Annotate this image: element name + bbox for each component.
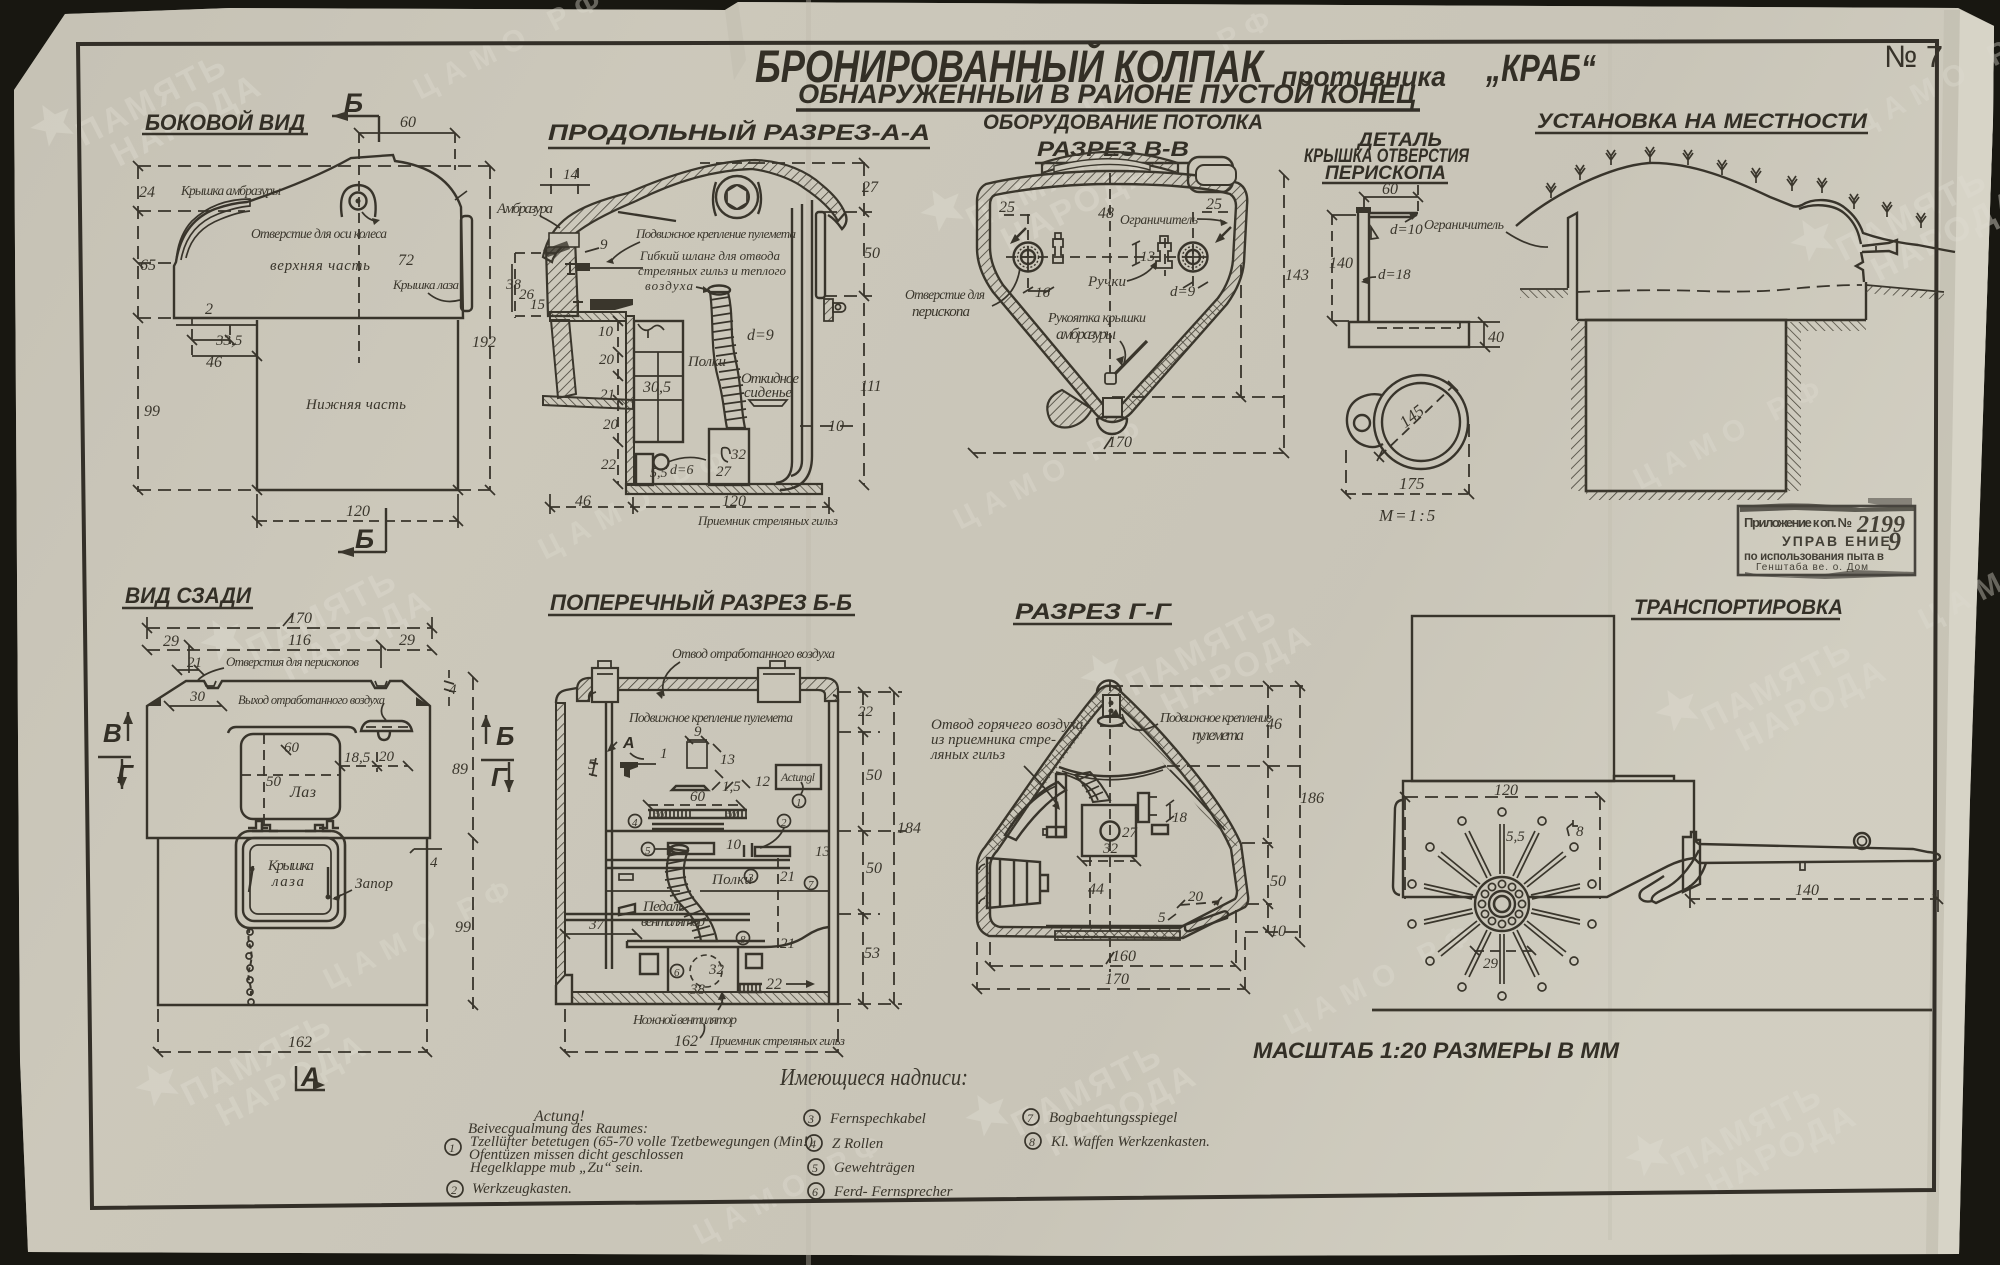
svg-text:Bogbaehtungsspiegel: Bogbaehtungsspiegel	[1049, 1110, 1177, 1126]
svg-text:УСТАНОВКА НА МЕСТНОСТИ: УСТАНОВКА НА МЕСТНОСТИ	[1537, 110, 1868, 133]
svg-text:ОБНАРУЖЕННЫЙ В РАЙОНЕ ПУСТОЙ К: ОБНАРУЖЕННЫЙ В РАЙОНЕ ПУСТОЙ КОНЕЦ	[798, 77, 1416, 109]
svg-text:Запор: Запор	[355, 876, 394, 892]
svg-text:Рукоятка крышки: Рукоятка крышки	[1047, 311, 1146, 326]
svg-text:Actungl: Actungl	[780, 770, 816, 784]
svg-text:13: 13	[815, 844, 830, 860]
svg-text:9: 9	[694, 724, 702, 740]
svg-text:18: 18	[1172, 810, 1188, 826]
svg-text:стреляных гильз и теплого: стреляных гильз и теплого	[638, 263, 787, 278]
svg-text:Отверстие для: Отверстие для	[905, 287, 985, 302]
svg-text:32: 32	[730, 447, 747, 463]
svg-text:21: 21	[600, 387, 615, 403]
svg-text:184: 184	[897, 820, 921, 837]
svg-text:вентилятор: вентилятор	[641, 914, 706, 930]
svg-text:10: 10	[598, 324, 614, 340]
svg-text:15: 15	[530, 297, 546, 313]
svg-text:2: 2	[781, 817, 787, 829]
svg-text:Полки: Полки	[687, 354, 726, 370]
svg-text:5,5: 5,5	[1506, 829, 1525, 845]
svg-text:пулемета: пулемета	[1192, 727, 1244, 744]
svg-text:Приемник стреляных гильз: Приемник стреляных гильз	[709, 1033, 845, 1048]
svg-text:10: 10	[726, 837, 742, 853]
svg-text:1: 1	[449, 1141, 455, 1155]
svg-text:30: 30	[189, 689, 206, 705]
svg-text:25: 25	[1206, 196, 1222, 213]
svg-text:21: 21	[780, 869, 795, 885]
svg-text:Z Rollen: Z Rollen	[832, 1136, 883, 1152]
svg-text:29: 29	[399, 632, 415, 649]
svg-text:2: 2	[205, 301, 213, 318]
svg-text:МАСШТАБ 1:20 РАЗМЕРЫ В ММ: МАСШТАБ 1:20 РАЗМЕРЫ В ММ	[1253, 1038, 1620, 1063]
svg-text:Отверстие для оси колеса: Отверстие для оси колеса	[251, 226, 387, 241]
svg-text:Подвижное крепление пулемета: Подвижное крепление пулемета	[635, 226, 797, 241]
svg-text:Подвижное крепление пулемета: Подвижное крепление пулемета	[628, 710, 793, 725]
svg-text:175: 175	[1399, 474, 1425, 493]
svg-text:М=1:5: М=1:5	[1378, 506, 1437, 525]
svg-text:d=9: d=9	[747, 327, 774, 344]
svg-text:Гибкий шланг для отвода: Гибкий шланг для отвода	[639, 248, 781, 263]
svg-text:Имеющиеся надписи:: Имеющиеся надписи:	[779, 1065, 968, 1091]
svg-text:d=9: d=9	[1170, 284, 1196, 300]
svg-text:27: 27	[1122, 825, 1139, 841]
svg-text:170: 170	[1105, 971, 1129, 988]
svg-text:65: 65	[140, 257, 156, 274]
svg-text:РАЗРЕЗ Г-Г: РАЗРЕЗ Г-Г	[1015, 599, 1173, 624]
svg-text:120: 120	[346, 503, 370, 520]
svg-text:50: 50	[866, 860, 882, 877]
svg-text:60: 60	[1382, 181, 1398, 198]
svg-text:ОБОРУДОВАНИЕ ПОТОЛКА: ОБОРУДОВАНИЕ ПОТОЛКА	[983, 111, 1263, 134]
svg-text:Г: Г	[491, 762, 508, 792]
svg-text:Hegelklappe mub „Zu“ sein.: Hegelklappe mub „Zu“ sein.	[469, 1160, 643, 1176]
svg-text:50: 50	[266, 774, 282, 790]
svg-text:Ручки: Ручки	[1087, 274, 1126, 290]
svg-text:20: 20	[599, 352, 615, 368]
svg-text:99: 99	[455, 919, 471, 936]
svg-text:№ 7: № 7	[1884, 39, 1943, 74]
svg-text:170: 170	[288, 610, 312, 627]
svg-text:Выход отработанного воздуха: Выход отработанного воздуха	[238, 693, 385, 707]
svg-text:В: В	[103, 718, 122, 748]
svg-text:33,5: 33,5	[215, 333, 243, 349]
svg-text:99: 99	[144, 403, 160, 420]
svg-text:Ножной вентилятор: Ножной вентилятор	[632, 1013, 737, 1028]
svg-text:ляных гильз: ляных гильз	[930, 747, 1005, 763]
svg-text:29: 29	[1483, 956, 1499, 972]
svg-text:9: 9	[1888, 527, 1901, 556]
svg-text:Г: Г	[117, 759, 134, 789]
svg-text:46: 46	[575, 493, 591, 510]
svg-text:53: 53	[864, 945, 880, 962]
svg-text:16: 16	[1035, 285, 1051, 301]
svg-text:ТРАНСПОРТИРОВКА: ТРАНСПОРТИРОВКА	[1634, 596, 1843, 619]
svg-text:24: 24	[139, 184, 155, 201]
svg-text:20: 20	[603, 417, 619, 433]
svg-text:Крышка: Крышка	[267, 858, 314, 874]
svg-text:из приемника стре-: из приемника стре-	[931, 732, 1056, 748]
svg-text:50: 50	[866, 767, 882, 784]
svg-text:192: 192	[472, 334, 496, 351]
svg-text:Подвижное крепление: Подвижное крепление	[1159, 711, 1272, 726]
svg-text:2: 2	[451, 1183, 457, 1197]
svg-text:9: 9	[600, 237, 608, 253]
svg-text:воздуха: воздуха	[645, 278, 694, 293]
svg-text:29: 29	[163, 633, 179, 650]
svg-text:60: 60	[690, 789, 706, 805]
svg-text:13: 13	[1140, 249, 1155, 265]
svg-text:ПРОДОЛЬНЫЙ РАЗРЕЗ-А-А: ПРОДОЛЬНЫЙ РАЗРЕЗ-А-А	[548, 119, 930, 145]
svg-text:1: 1	[796, 797, 802, 809]
svg-text:20: 20	[379, 749, 395, 765]
svg-text:120: 120	[722, 493, 746, 510]
svg-text:8: 8	[1029, 1135, 1035, 1149]
svg-text:48: 48	[1098, 205, 1114, 222]
svg-text:4: 4	[810, 1137, 816, 1151]
svg-text:27: 27	[716, 464, 733, 480]
svg-text:89: 89	[452, 761, 468, 778]
svg-text:Б: Б	[496, 721, 514, 751]
svg-text:60: 60	[284, 740, 300, 756]
svg-text:7: 7	[1027, 1111, 1034, 1125]
svg-text:Ограничитель: Ограничитель	[1424, 218, 1504, 233]
svg-text:22: 22	[601, 457, 617, 473]
svg-text:ВИД СЗАДИ: ВИД СЗАДИ	[125, 583, 252, 608]
svg-text:УПРАВ ЕНИЕ: УПРАВ ЕНИЕ	[1782, 533, 1892, 549]
svg-text:37: 37	[588, 917, 606, 933]
svg-text:25: 25	[999, 199, 1015, 216]
svg-text:Крышка лаза: Крышка лаза	[392, 277, 460, 292]
svg-text:32: 32	[708, 962, 725, 978]
svg-text:4: 4	[632, 817, 638, 829]
svg-text:50: 50	[864, 245, 880, 262]
svg-text:Б: Б	[355, 524, 374, 554]
svg-text:7: 7	[808, 879, 814, 891]
svg-text:500: 500	[655, 810, 667, 819]
svg-text:21: 21	[187, 655, 202, 671]
svg-text:1,5: 1,5	[722, 779, 741, 795]
svg-text:170: 170	[1108, 434, 1132, 451]
svg-text:перископа: перископа	[912, 304, 970, 320]
svg-text:1: 1	[660, 746, 668, 762]
svg-text:72: 72	[398, 252, 414, 269]
svg-text:Ограничитель: Ограничитель	[1120, 212, 1198, 227]
svg-text:d=10: d=10	[1390, 222, 1423, 238]
svg-text:6: 6	[812, 1185, 818, 1199]
svg-text:Отвод горячего воздуха: Отвод горячего воздуха	[931, 717, 1083, 733]
svg-text:162: 162	[288, 1034, 312, 1051]
svg-text:5: 5	[645, 845, 651, 857]
svg-text:3: 3	[807, 1112, 814, 1126]
svg-text:162: 162	[674, 1033, 698, 1050]
svg-text:Педаль: Педаль	[642, 899, 685, 915]
svg-text:Fernspechkabel: Fernspechkabel	[829, 1111, 926, 1127]
svg-text:13: 13	[720, 752, 735, 768]
svg-text:5: 5	[812, 1161, 818, 1175]
svg-text:186: 186	[1300, 790, 1324, 807]
svg-text:„КРАБ“: „КРАБ“	[1485, 48, 1596, 90]
svg-text:Крышка амбразуры: Крышка амбразуры	[180, 183, 281, 198]
svg-text:8: 8	[740, 934, 746, 946]
svg-text:Приемник стреляных гильз: Приемник стреляных гильз	[697, 513, 838, 528]
svg-text:4: 4	[430, 855, 438, 871]
svg-text:5,5: 5,5	[650, 466, 668, 481]
svg-text:лаза: лаза	[271, 874, 304, 890]
svg-text:12: 12	[755, 774, 771, 790]
svg-text:30,5: 30,5	[642, 379, 671, 396]
svg-text:Генштаба ве. о. Дом: Генштаба ве. о. Дом	[1756, 561, 1868, 573]
svg-text:500: 500	[727, 810, 739, 819]
svg-text:143: 143	[1285, 267, 1309, 284]
svg-text:амбразуры: амбразуры	[1056, 326, 1116, 343]
svg-text:40: 40	[1488, 329, 1504, 346]
svg-text:14: 14	[563, 167, 579, 183]
svg-text:сиденье: сиденье	[744, 385, 792, 401]
svg-text:Kl. Waffen Werkzenkasten.: Kl. Waffen Werkzenkasten.	[1050, 1134, 1210, 1150]
svg-text:d=6: d=6	[670, 463, 693, 478]
svg-text:22: 22	[766, 976, 782, 993]
svg-text:d=18: d=18	[1378, 267, 1411, 283]
svg-text:120: 120	[1494, 782, 1518, 799]
svg-text:50: 50	[1270, 873, 1286, 890]
svg-text:38: 38	[689, 982, 706, 998]
svg-text:140: 140	[1795, 882, 1819, 899]
svg-text:160: 160	[1112, 948, 1136, 965]
svg-text:Отверстия для перископов: Отверстия для перископов	[226, 654, 359, 669]
svg-text:Приложение к оп. №: Приложение к оп. №	[1744, 515, 1852, 530]
svg-text:18,5: 18,5	[344, 750, 371, 766]
svg-text:46: 46	[206, 354, 222, 371]
svg-text:60: 60	[400, 114, 416, 131]
svg-text:6: 6	[674, 967, 680, 979]
svg-text:Отвод отработанного воздуха: Отвод отработанного воздуха	[672, 646, 835, 661]
svg-text:А: А	[622, 735, 635, 752]
svg-text:Лаз: Лаз	[289, 784, 316, 801]
svg-text:Нижняя часть: Нижняя часть	[305, 397, 406, 413]
svg-text:Werkzeugkasten.: Werkzeugkasten.	[472, 1181, 572, 1197]
svg-text:Ferd- Fernsprecher: Ferd- Fernsprecher	[833, 1184, 953, 1200]
svg-text:Полки: Полки	[711, 872, 752, 888]
svg-text:ПОПЕРЕЧНЫЙ РАЗРЕЗ Б-Б: ПОПЕРЕЧНЫЙ РАЗРЕЗ Б-Б	[550, 589, 852, 615]
svg-text:22: 22	[858, 704, 874, 720]
svg-text:5: 5	[1158, 910, 1166, 926]
svg-text:БОКОВОЙ ВИД: БОКОВОЙ ВИД	[145, 109, 305, 135]
svg-text:116: 116	[288, 632, 311, 649]
svg-text:Gewehträgen: Gewehträgen	[834, 1160, 915, 1176]
svg-text:Амбразура: Амбразура	[496, 201, 553, 217]
svg-text:верхняя часть: верхняя часть	[270, 258, 370, 274]
